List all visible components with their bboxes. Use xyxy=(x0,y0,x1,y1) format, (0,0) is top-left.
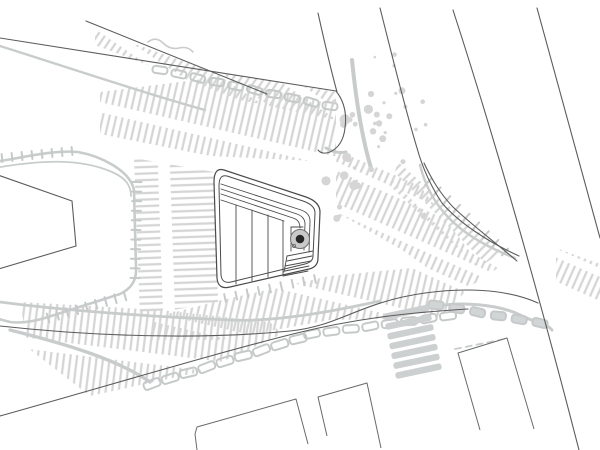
speckle xyxy=(373,122,377,126)
speckle xyxy=(374,56,377,59)
speckle xyxy=(394,92,397,95)
curb-tick xyxy=(42,150,43,158)
paving-stone xyxy=(511,314,527,324)
paving-stone xyxy=(491,311,507,320)
speckle xyxy=(340,171,349,180)
speckle xyxy=(384,131,387,134)
speckle xyxy=(421,213,428,220)
speckle xyxy=(392,52,397,57)
speckle xyxy=(364,105,373,114)
speckle xyxy=(340,114,351,125)
speckle xyxy=(342,153,351,162)
speckle xyxy=(414,128,418,132)
speckle xyxy=(374,112,380,118)
speckle xyxy=(338,214,342,218)
speckle xyxy=(377,145,380,148)
curb-tick xyxy=(62,148,63,156)
speckle xyxy=(350,112,356,118)
hatch-rows-west-of-plaza xyxy=(134,158,218,316)
speckle xyxy=(337,204,342,209)
curb-tick xyxy=(12,153,13,161)
curb-tick xyxy=(72,147,73,155)
speckle xyxy=(376,120,382,126)
tree-symbol xyxy=(291,230,310,249)
site-plan-canvas xyxy=(0,0,600,450)
speckle xyxy=(401,159,406,164)
speckle xyxy=(321,176,330,185)
curb-tick xyxy=(22,152,23,160)
curb-tick xyxy=(2,154,3,162)
speckle xyxy=(332,99,336,103)
curb-tick xyxy=(32,151,33,159)
speckle xyxy=(420,99,425,104)
speckle xyxy=(368,91,374,97)
speckle xyxy=(349,181,358,190)
speckle xyxy=(424,123,428,127)
speckle xyxy=(353,166,356,169)
paving-stone xyxy=(428,300,444,309)
paving-stone xyxy=(449,303,465,313)
site-plan-drawing xyxy=(0,0,600,450)
speckle xyxy=(370,128,376,134)
speckle xyxy=(386,113,392,119)
speckle xyxy=(382,101,385,104)
speckle xyxy=(353,122,358,127)
speckle xyxy=(379,135,386,142)
curb-tick xyxy=(52,149,53,157)
speckle xyxy=(368,167,374,173)
tree-trunk-core xyxy=(296,235,305,244)
